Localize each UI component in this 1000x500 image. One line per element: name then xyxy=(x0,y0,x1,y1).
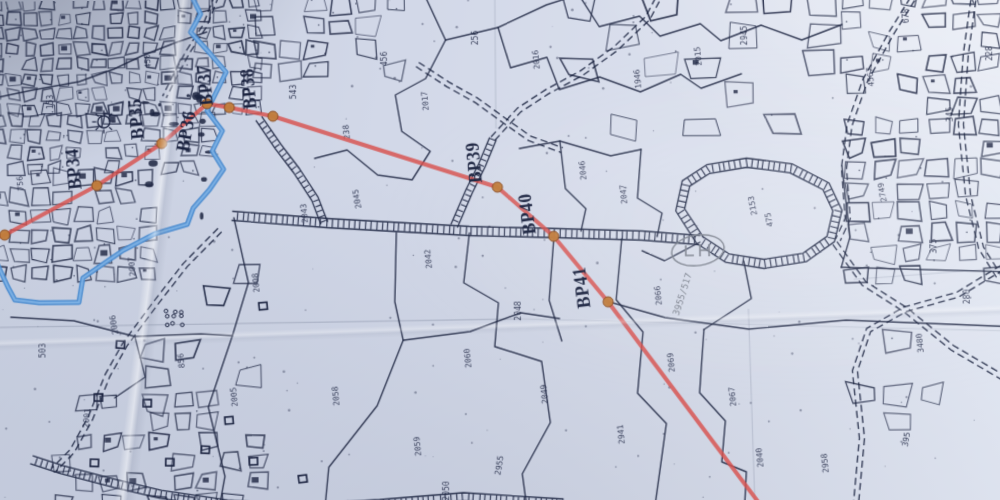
building-mark xyxy=(27,76,31,79)
ink-dot xyxy=(157,84,159,86)
parcel-cell xyxy=(102,494,121,500)
parcel-cell xyxy=(356,0,376,13)
speckle xyxy=(102,469,104,471)
road-hatch-tick xyxy=(292,166,297,170)
parcel-cell xyxy=(125,43,139,55)
parcel-cell xyxy=(142,394,168,416)
ink-dot xyxy=(846,21,848,23)
road-edge xyxy=(961,0,1000,277)
ink-dot xyxy=(85,74,87,76)
plot-number: 2050 xyxy=(441,481,451,500)
speckle xyxy=(433,40,435,42)
ink-dot xyxy=(263,450,265,452)
road-hatch-tick xyxy=(829,232,837,234)
road-hatch-tick xyxy=(458,209,463,211)
plot-number: 345 xyxy=(945,107,955,122)
parcel-cell xyxy=(0,0,2,11)
road-hatch-tick xyxy=(712,164,713,172)
building-mark xyxy=(100,250,107,256)
road-hatch-tick xyxy=(692,175,696,182)
parcel-cell xyxy=(56,87,73,102)
parcel-cell xyxy=(842,0,863,9)
plot-number: 2958 xyxy=(819,453,831,474)
parcel-cell xyxy=(68,130,82,143)
ellipse-landmark-glyph xyxy=(686,244,709,256)
plot-number: 280 xyxy=(962,289,972,304)
speckle xyxy=(348,454,350,456)
parcel-cell xyxy=(610,114,637,141)
parcel-cell xyxy=(725,81,753,107)
road-hatch-tick xyxy=(748,258,749,266)
speckle xyxy=(93,319,95,321)
ink-dot xyxy=(178,15,180,17)
ink-blob xyxy=(201,177,207,182)
parcel-cell xyxy=(897,202,921,222)
road-hatch-tick xyxy=(420,224,421,232)
road-hatch-tick xyxy=(684,219,691,223)
parcel-cell xyxy=(160,0,175,10)
parcel-cell xyxy=(77,435,91,450)
plot-number: 2955 xyxy=(492,455,505,476)
parcel-cell xyxy=(0,75,4,86)
parcel-cell xyxy=(929,201,946,220)
plot-number: 2048 xyxy=(513,301,523,321)
parcel-cell xyxy=(92,26,104,40)
plot-number: 256 xyxy=(470,30,480,45)
parcel-cell xyxy=(303,40,328,60)
ink-dot xyxy=(318,24,320,26)
speckle xyxy=(72,285,73,286)
speckle xyxy=(117,10,118,11)
plot-number: 2046 xyxy=(577,160,589,181)
parcel-cell xyxy=(806,0,836,16)
speckle xyxy=(905,396,907,398)
plot-number: 503 xyxy=(37,343,47,358)
parcel-cell xyxy=(22,0,35,11)
parcel-cell xyxy=(92,44,107,56)
ink-dot xyxy=(268,52,270,54)
parcel-cell xyxy=(8,113,23,127)
speckle xyxy=(379,68,381,70)
road-hatch-tick xyxy=(276,215,277,223)
speckle xyxy=(283,370,286,373)
speckle xyxy=(5,428,7,430)
parcel-cell xyxy=(74,207,93,222)
road-hatch-tick xyxy=(812,248,817,255)
parcel-cell xyxy=(8,161,26,175)
speckle xyxy=(697,225,698,226)
speckle xyxy=(800,409,802,411)
ink-dot xyxy=(81,7,83,9)
parcel-cell xyxy=(106,148,122,159)
speckle xyxy=(852,338,854,340)
plot-number: 2069 xyxy=(665,352,677,373)
speckle xyxy=(858,343,860,345)
parcel-cell xyxy=(840,56,863,73)
road-hatch-tick xyxy=(729,162,730,170)
road-hatch-tick xyxy=(680,190,688,192)
ink-dot xyxy=(52,111,54,113)
parcel-cell xyxy=(981,32,1000,49)
parcel-cell xyxy=(140,247,157,263)
bp-marker-label-BP37: BP37 xyxy=(192,64,217,107)
parcel-boundary xyxy=(115,336,146,397)
road-hatch-tick xyxy=(149,488,151,495)
parcel-cell xyxy=(641,0,679,21)
road-hatch-tick xyxy=(317,210,323,212)
speckle xyxy=(911,211,912,212)
plot-number: 2066 xyxy=(652,285,664,306)
speckle xyxy=(176,290,177,291)
ink-dot xyxy=(88,110,90,112)
speckle xyxy=(413,255,414,256)
parcel-cell xyxy=(32,188,51,206)
speckle xyxy=(432,365,434,367)
parcel-cell xyxy=(92,87,107,100)
parcel-cell xyxy=(24,13,37,26)
road-hatch-tick xyxy=(293,217,294,225)
road-hatch-tick xyxy=(313,200,319,202)
parcel-cell xyxy=(986,222,1000,242)
ink-dot xyxy=(192,170,194,172)
road-hatch-tick xyxy=(178,493,179,500)
speckle xyxy=(0,72,1,74)
speckle xyxy=(2,309,3,310)
speckle xyxy=(885,466,886,467)
plot-number: 2015 xyxy=(692,46,704,66)
parcel-cell xyxy=(872,202,894,219)
road-se-junction-road-b xyxy=(850,260,1000,500)
speckle xyxy=(458,237,460,239)
speckle xyxy=(143,339,146,342)
building-symbol xyxy=(249,458,257,465)
speckle xyxy=(774,335,775,336)
road-hatch-tick xyxy=(790,164,791,172)
road-hatch-tick xyxy=(310,194,315,197)
parcel-cell xyxy=(52,245,72,262)
speckle xyxy=(637,455,639,457)
road-hatch-tick xyxy=(688,224,695,228)
road-hatch-tick xyxy=(818,180,822,187)
road-hatch-tick xyxy=(831,221,839,223)
parcel-cell xyxy=(22,28,38,41)
speckle xyxy=(970,85,973,88)
road-hatch-tick xyxy=(433,496,434,500)
road-hatch-tick xyxy=(711,245,715,252)
parcel-cell xyxy=(924,159,948,178)
parcel-cell xyxy=(29,114,45,127)
plot-number: 2017 xyxy=(419,91,431,111)
parcel-cell xyxy=(6,12,21,25)
building-mark xyxy=(931,79,935,82)
parcel-cell xyxy=(248,0,259,7)
parcel-cell xyxy=(48,161,61,174)
parcel-cell xyxy=(644,52,679,77)
road-hatch-tick xyxy=(465,194,470,196)
speckle xyxy=(111,102,112,103)
speckle xyxy=(59,456,61,458)
parcel-cell xyxy=(848,223,869,242)
road-hatch-tick xyxy=(279,149,284,153)
plot-number: 2049 xyxy=(538,384,550,405)
parcel-cell xyxy=(117,226,135,240)
parcel-cell xyxy=(203,286,230,306)
road-hatch-tick xyxy=(723,163,724,171)
building-mark xyxy=(105,438,111,443)
speckle xyxy=(455,26,458,29)
road-hatch-tick xyxy=(382,222,383,230)
ink-dot xyxy=(239,468,241,470)
ink-dot xyxy=(196,410,198,412)
parcel-cell xyxy=(75,225,93,241)
parcel-cell xyxy=(122,435,144,449)
speckle xyxy=(546,152,548,154)
speckle xyxy=(602,87,604,89)
speckle xyxy=(615,466,617,468)
ink-dot xyxy=(882,59,884,61)
road-hatch-tick xyxy=(490,495,491,500)
road-hatch-tick xyxy=(265,214,266,222)
speckle xyxy=(565,429,567,431)
ink-dot xyxy=(396,8,398,10)
parcel-cell xyxy=(0,245,8,261)
ink-dot xyxy=(96,59,98,61)
road-hatch-tick xyxy=(500,496,501,500)
speckle xyxy=(351,85,354,88)
parcel-cell xyxy=(884,413,911,430)
road-hatch-tick xyxy=(111,479,113,486)
building-mark xyxy=(165,106,172,111)
speckle xyxy=(606,171,608,173)
ink-dot xyxy=(7,8,9,10)
parcel-cell xyxy=(0,27,4,38)
parcel-cell xyxy=(725,0,757,12)
parcel-cell xyxy=(40,74,52,85)
ink-dot xyxy=(20,242,22,244)
road-hatch-tick xyxy=(762,161,763,169)
parcel-cell xyxy=(73,26,87,38)
parcel-cell xyxy=(7,145,21,160)
speckle xyxy=(239,15,241,17)
parcel-cell xyxy=(922,0,947,8)
ink-dot xyxy=(136,247,138,249)
road-hatch-tick xyxy=(304,185,309,188)
building-mark xyxy=(113,106,120,111)
speckle xyxy=(533,309,534,310)
parcel-cell xyxy=(39,12,52,27)
parcel-cell xyxy=(882,329,912,353)
road-hatch-tick xyxy=(275,144,280,147)
parcel-boundary xyxy=(463,232,551,500)
parcel-cell xyxy=(52,227,70,243)
parcel-cell xyxy=(0,59,3,72)
road-hatch-tick xyxy=(682,184,690,186)
road-hatch-tick xyxy=(793,167,797,174)
speckle xyxy=(728,452,730,454)
road-hatch-tick xyxy=(697,172,701,179)
road-hatch-tick xyxy=(834,210,842,212)
speckle xyxy=(386,184,387,185)
ink-blob xyxy=(186,94,190,97)
road-edge xyxy=(956,0,997,280)
bp-marker-label-BP34: BP34 xyxy=(61,148,86,191)
parcel-cell xyxy=(986,244,1000,259)
road-hatch-tick xyxy=(359,221,360,229)
speckle xyxy=(117,368,118,369)
speckle xyxy=(568,135,570,137)
parcel-cell xyxy=(355,16,381,37)
plot-number: 2008 xyxy=(250,273,262,294)
road-hatch-tick xyxy=(84,472,86,479)
road-hatch-tick xyxy=(466,227,467,235)
road-hatch-tick xyxy=(254,214,255,222)
road-hatch-tick xyxy=(462,493,463,500)
building-mark xyxy=(78,91,81,94)
plot-number: 375 xyxy=(928,239,938,254)
speckle xyxy=(48,421,50,423)
road-hatch-tick xyxy=(715,248,719,255)
parcel-cell xyxy=(953,158,977,179)
ink-dot xyxy=(56,279,58,281)
road-hatch-tick xyxy=(432,225,433,233)
road-hatch-tick xyxy=(46,462,48,469)
road-hatch-tick xyxy=(259,214,260,222)
road-hatch-tick xyxy=(719,163,720,171)
route-waypoint-dot xyxy=(549,231,559,241)
road-hatch-tick xyxy=(437,225,438,233)
road-hatch-tick xyxy=(803,172,807,179)
parcel-cell xyxy=(22,74,37,86)
ink-blob xyxy=(150,109,155,116)
ink-dot xyxy=(24,104,26,106)
ink-dot xyxy=(675,50,677,52)
ink-dot xyxy=(73,275,75,277)
parcel-cell xyxy=(229,28,245,38)
building-mark xyxy=(143,269,146,272)
road-hatch-tick xyxy=(454,226,455,234)
parcel-cell xyxy=(104,130,121,141)
building-mark xyxy=(311,45,315,48)
road-edge xyxy=(837,240,1000,383)
parcel-cell xyxy=(683,119,721,136)
road-hatch-tick xyxy=(301,180,306,183)
road-hatch-tick xyxy=(830,226,838,228)
speckle xyxy=(232,278,234,280)
road-hatch-tick xyxy=(463,199,468,201)
speckle xyxy=(596,262,599,265)
ink-dot xyxy=(332,12,334,14)
ink-dot xyxy=(920,167,922,169)
parcel-cell xyxy=(41,58,53,71)
grid-line xyxy=(495,0,496,128)
speckle xyxy=(389,0,390,1)
building-mark xyxy=(32,149,36,152)
parcel-boundary xyxy=(579,0,843,42)
speckle xyxy=(393,77,396,80)
building-symbol xyxy=(116,341,125,349)
ink-dot xyxy=(132,147,134,149)
speckle xyxy=(305,309,307,311)
road-hatch-tick xyxy=(315,218,316,226)
road-hatch-tick xyxy=(243,213,244,221)
speckle xyxy=(288,409,291,412)
cadastral-map: 2007200650320012005204320452042206020482… xyxy=(0,0,1000,500)
parcel-cell xyxy=(921,382,944,405)
road-hatch-tick xyxy=(319,215,325,217)
parcel-cell xyxy=(897,35,921,52)
building-mark xyxy=(734,90,738,93)
plot-number: 3480 xyxy=(914,333,926,354)
road-hatch-tick xyxy=(286,157,291,161)
parcel-cell xyxy=(954,77,977,93)
building-mark xyxy=(96,106,103,111)
road-hatch-tick xyxy=(820,242,825,249)
parcel-cell xyxy=(871,245,897,265)
road-hatch-tick xyxy=(455,215,460,217)
parcel-cell xyxy=(129,72,140,84)
speckle xyxy=(552,26,553,27)
speckle xyxy=(63,137,65,139)
parcel-cell xyxy=(304,0,327,12)
building-mark xyxy=(113,0,118,4)
road-hatch-tick xyxy=(806,251,811,258)
road-hatch-tick xyxy=(486,149,491,151)
road-hatch-tick xyxy=(188,495,189,500)
road-hatch-tick xyxy=(746,159,747,167)
road-hatch-tick xyxy=(426,225,427,233)
parcel-cell xyxy=(900,0,919,7)
road-hatch-tick xyxy=(35,458,37,465)
parcel-cell xyxy=(139,268,155,280)
parcel-cell xyxy=(248,25,263,39)
route-waypoint-dot xyxy=(0,230,10,240)
ink-dot xyxy=(50,19,52,21)
road-hatch-tick xyxy=(460,227,461,235)
ink-dot xyxy=(846,59,848,61)
road-hatch-tick xyxy=(781,257,782,265)
building-mark xyxy=(15,212,20,216)
parcel-cell xyxy=(196,412,218,431)
plot-number: 2007 xyxy=(126,256,138,277)
parcel-boundary xyxy=(560,141,586,231)
parcel-cell xyxy=(177,86,193,99)
road-hatch-tick xyxy=(828,237,836,239)
parcel-boundary xyxy=(549,239,562,341)
parcel-cell xyxy=(159,26,175,40)
building-mark xyxy=(216,45,221,49)
parcel-cell xyxy=(96,228,115,244)
road-hatch-tick xyxy=(468,494,469,500)
speckle xyxy=(694,331,696,333)
plot-number: 2001 xyxy=(81,408,93,429)
parcel-cell xyxy=(22,57,37,70)
parcel-cell xyxy=(52,208,71,225)
ink-dot xyxy=(63,135,65,137)
parcel-cell xyxy=(764,114,801,134)
speckle xyxy=(270,4,272,6)
plot-number: 678 xyxy=(901,8,911,23)
road-hatch-tick xyxy=(272,140,277,143)
speckle xyxy=(695,191,696,192)
building-mark xyxy=(906,228,913,234)
parcel-cell xyxy=(140,339,164,363)
ink-dot xyxy=(54,2,56,4)
road-edge xyxy=(490,0,661,137)
building-mark xyxy=(0,193,1,199)
speckle xyxy=(585,137,587,139)
ink-dot xyxy=(217,76,219,78)
speckle xyxy=(628,53,631,56)
